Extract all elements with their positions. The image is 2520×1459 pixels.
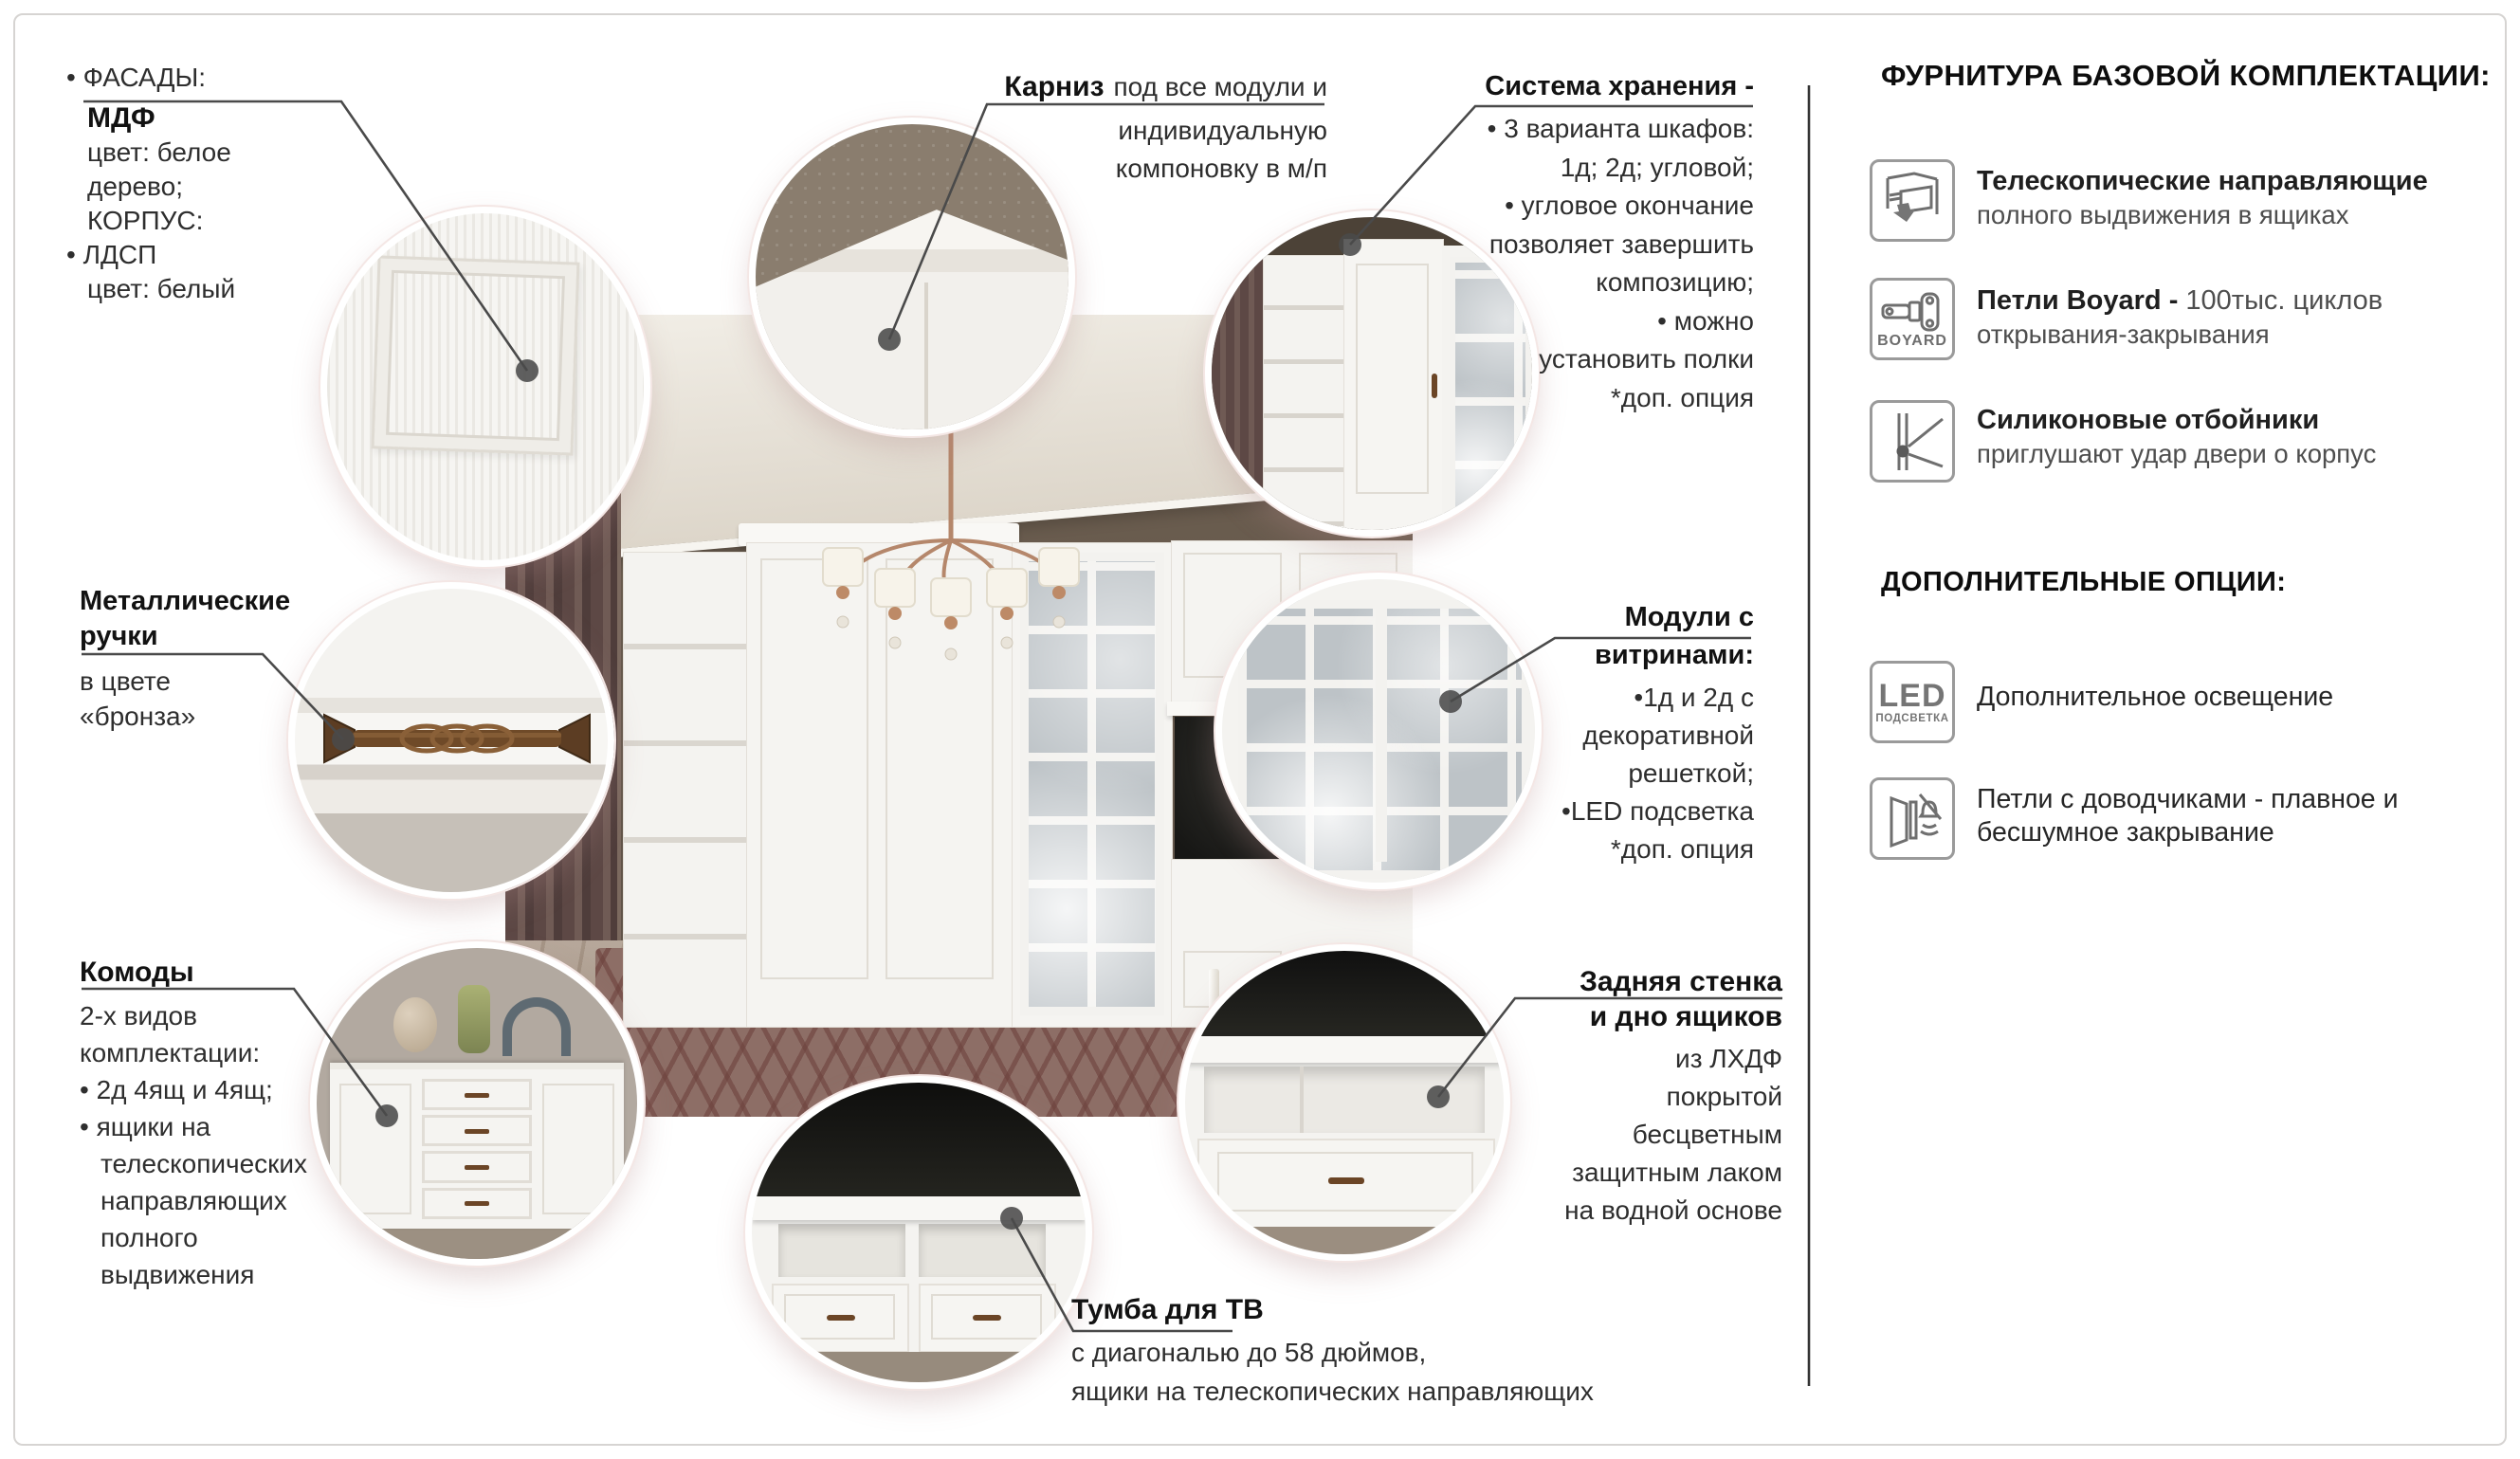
callout-cornice-line: под все модули и [1114,70,1327,104]
callout-storage-title: Система хранения - [1375,66,1754,106]
boyard-label: BOYARD [1877,334,1947,349]
callout-tv-line: с диагональю до 58 дюймов, [1071,1333,1678,1372]
dresser-door-right [542,1084,614,1214]
item-title: Силиконовые отбойники [1977,404,2470,436]
callout-handles: Металлические ручки в цвете «бронза» [80,584,393,734]
cornice-molding [749,210,1075,436]
sidebar-item-slides: Телескопические направляющие полного выд… [1977,165,2470,231]
stand-drawer [919,1284,1056,1354]
callout-back-line: бесцветным [1403,1116,1782,1154]
callout-facades-line: • ФАСАДЫ: [66,61,351,95]
door-divider [1376,600,1387,861]
callout-tv-line: ящики на телескопических направляющих [1071,1372,1678,1411]
callout-back-panel: Задняя стенка и дно ящиков из ЛХДФ покры… [1403,964,1782,1230]
callout-vitrines-line: *доп. опция [1451,830,1754,868]
callout-dressers-line: телескопических [80,1145,402,1182]
callout-dressers-line: • 2д 4ящ и 4ящ; [80,1071,402,1108]
item-desc: полного выдвижения в ящиках [1977,199,2470,231]
callout-dressers-line: 2-х видов [80,997,402,1034]
callout-dressers-line: полного [80,1219,402,1256]
callout-dressers-line: • ящики на [80,1108,402,1145]
sidebar-options-title: ДОПОЛНИТЕЛЬНЫЕ ОПЦИИ: [1881,567,2286,598]
callout-tv-title: Тумба для ТВ [1071,1291,1678,1329]
callout-vitrines: Модули с витринами: •1д и 2д с декоратив… [1451,599,1754,868]
callout-storage-line: • угловое окончание [1375,187,1754,226]
open-niche [919,1224,1046,1278]
callout-back-line: из ЛХДФ [1403,1040,1782,1078]
callout-vitrines-line: •1д и 2д с [1451,679,1754,717]
callout-handles-title: ручки [80,619,393,654]
niche-divider [1300,1067,1304,1133]
open-niche [778,1224,905,1278]
item-title: Телескопические направляющие [1977,165,2470,197]
sidebar-item-led: Дополнительное освещение [1977,681,2470,714]
cabinet-joint-line [924,283,928,429]
callout-storage: Система хранения - • 3 варианта шкафов: … [1375,66,1754,417]
callout-storage-line: композицию; [1375,264,1754,302]
mdf-panel-profile [372,255,580,455]
callout-facades-line: цвет: белый [66,272,351,306]
callout-vitrines-line: декоративной [1451,717,1754,755]
callout-cornice-line: компоновку в м/п [910,150,1327,188]
dresser-drawers [422,1079,531,1218]
callout-handles-line: в цвете [80,664,393,699]
callout-cornice-title: Карниз [1004,70,1104,104]
callout-facades-line: цвет: белое [66,136,351,170]
infographic-page: • ФАСАДЫ: МДФ цвет: белое дерево; КОРПУС… [0,0,2520,1459]
callout-dressers-title: Комоды [80,956,402,990]
led-label: LED [1879,681,1946,711]
callout-dressers: Комоды 2-х видов комплектации: • 2д 4ящ … [80,956,402,1293]
callout-facades-line: дерево; [66,170,351,204]
callout-storage-line: позволяет завершить [1375,226,1754,264]
boyard-hinge-icon: BOYARD [1870,278,1955,360]
sidebar-item-bumpers: Силиконовые отбойники приглушают удар дв… [1977,404,2470,470]
callout-back-line: покрытой [1403,1078,1782,1116]
callout-storage-line: установить полки [1375,340,1754,379]
sidebar-item-hinges: Петли Boyard - 100тыс. циклов открывания… [1977,284,2470,351]
tv-bottom-edge [752,1083,1086,1196]
callout-vitrines-line: решеткой; [1451,755,1754,793]
callout-handles-line: «бронза» [80,699,393,734]
item-desc: приглушают удар двери о корпус [1977,438,2470,470]
callout-back-title: Задняя стенка [1403,964,1782,999]
callout-dressers-line: комплектации: [80,1034,402,1071]
stand-drawer [772,1284,909,1354]
corner-open-shelves [1263,255,1345,532]
sidebar-item-softclose: Петли с доводчиками - плавное и бесшумно… [1977,783,2489,849]
callout-cornice-line: индивидуальную [910,112,1327,150]
callout-storage-line: • можно [1375,302,1754,341]
curtain-strip [1212,217,1266,530]
corner-shelf-unit [623,552,748,1028]
callout-storage-line: *доп. опция [1375,379,1754,418]
callout-back-line: на водной основе [1403,1192,1782,1230]
item-desc: открывания-закрывания [1977,319,2470,351]
sidebar-base-title: ФУРНИТУРА БАЗОВОЙ КОМПЛЕКТАЦИИ: [1881,59,2491,93]
bubble-tv-stand [745,1076,1092,1389]
silicone-bumper-icon [1870,400,1955,483]
callout-tv-stand: Тумба для ТВ с диагональю до 58 дюймов, … [1071,1291,1678,1411]
callout-storage-line: • 3 варианта шкафов: [1375,110,1754,149]
callout-vitrines-title: Модули с [1451,599,1754,635]
drawer-slides-icon [1870,159,1955,242]
callout-storage-line: 1д; 2д; угловой; [1375,149,1754,188]
chandelier [790,427,1112,739]
item-desc: бесшумное закрывание [1977,816,2489,849]
callout-dressers-line: выдвижения [80,1256,402,1293]
floor-strip [752,1352,1086,1382]
stand-top-slab [752,1196,1086,1220]
floor-strip [1185,1227,1504,1254]
callout-vitrines-line: •LED подсветка [1451,793,1754,830]
item-title: Петли Boyard - [1977,285,2178,316]
item-title: Дополнительное освещение [1977,681,2470,714]
callout-cornice: Карниз под все модули и индивидуальную к… [910,70,1327,188]
item-title: Петли с доводчиками - плавное и [1977,783,2489,816]
callout-facades-title: МДФ [66,100,351,136]
callout-back-line: защитным лаком [1403,1154,1782,1192]
glass-bottle [458,985,490,1053]
callout-vitrines-title: витринами: [1451,637,1754,673]
callout-dressers-line: направляющих [80,1182,402,1219]
led-light-icon: LED ПОДСВЕТКА [1870,661,1955,743]
arch-decor [502,997,571,1056]
callout-facades-line: • ЛДСП [66,238,351,272]
soft-close-hinge-icon [1870,777,1955,860]
callout-back-title: и дно ящиков [1403,999,1782,1034]
bubble-facade-detail [320,207,650,567]
callout-facades-line: КОРПУС: [66,204,351,238]
led-sublabel: ПОДСВЕТКА [1875,713,1948,724]
item-title-tail: 100тыс. циклов [2185,285,2383,316]
callout-handles-title: Металлические [80,584,393,619]
callout-facades: • ФАСАДЫ: МДФ цвет: белое дерево; КОРПУС… [66,61,351,306]
